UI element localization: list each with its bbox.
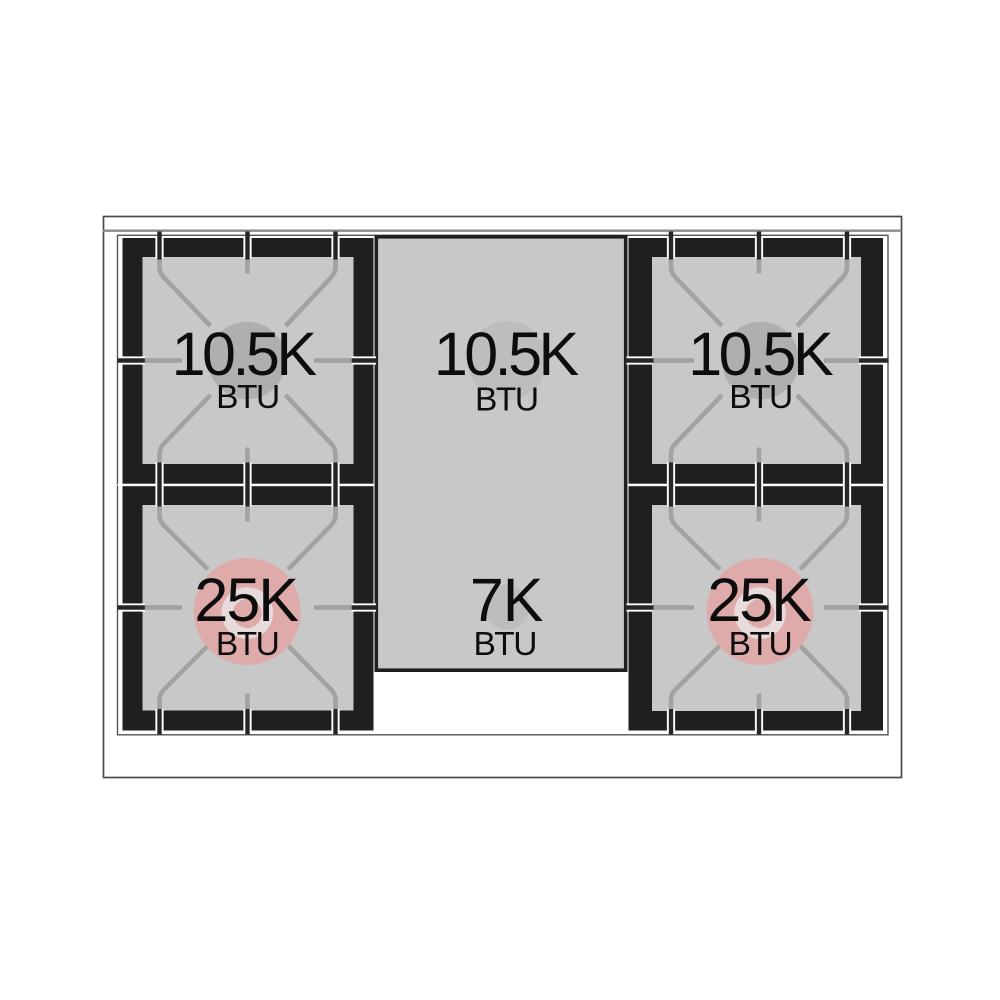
svg-text:10.5K: 10.5K	[434, 320, 579, 388]
svg-text:BTU: BTU	[729, 626, 792, 663]
svg-text:BTU: BTU	[729, 379, 792, 416]
svg-text:BTU: BTU	[216, 379, 279, 416]
svg-text:25K: 25K	[707, 566, 811, 634]
svg-text:BTU: BTU	[473, 626, 536, 663]
svg-text:10.5K: 10.5K	[172, 320, 317, 388]
svg-text:BTU: BTU	[475, 381, 538, 418]
svg-text:25K: 25K	[194, 566, 298, 634]
svg-text:BTU: BTU	[216, 626, 279, 663]
svg-text:10.5K: 10.5K	[688, 320, 833, 388]
svg-text:7K: 7K	[470, 566, 543, 634]
